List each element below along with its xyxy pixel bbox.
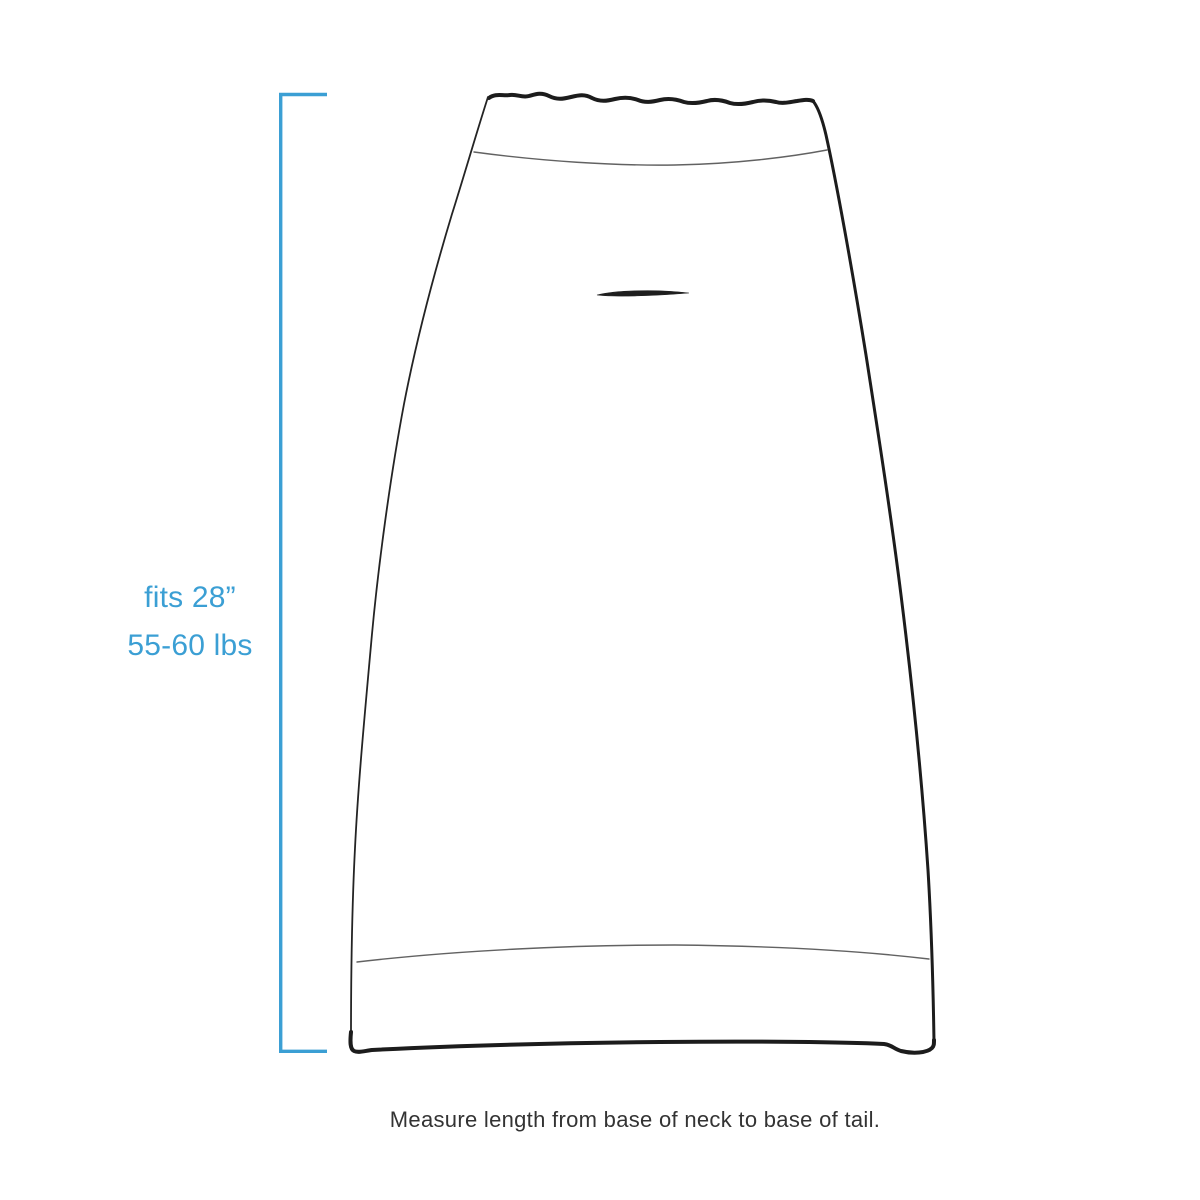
weight-range-label: 55-60 lbs bbox=[80, 622, 300, 670]
garment-neck-seam bbox=[474, 150, 827, 165]
garment-hem-seam bbox=[357, 945, 929, 962]
garment-bottom-hem bbox=[350, 1032, 934, 1053]
garment-back-slit bbox=[597, 291, 689, 296]
garment-right-edge bbox=[813, 101, 934, 1042]
size-chart-canvas: fits 28” 55-60 lbs Measure length from b… bbox=[0, 0, 1200, 1200]
garment-top-elastic-edge bbox=[489, 94, 813, 104]
measurement-instruction: Measure length from base of neck to base… bbox=[135, 1106, 1135, 1134]
fit-size-label: fits 28” bbox=[80, 574, 300, 622]
length-measurement-bracket bbox=[281, 95, 327, 1052]
garment-left-edge bbox=[351, 97, 488, 1036]
measurement-label: fits 28” 55-60 lbs bbox=[80, 574, 300, 670]
